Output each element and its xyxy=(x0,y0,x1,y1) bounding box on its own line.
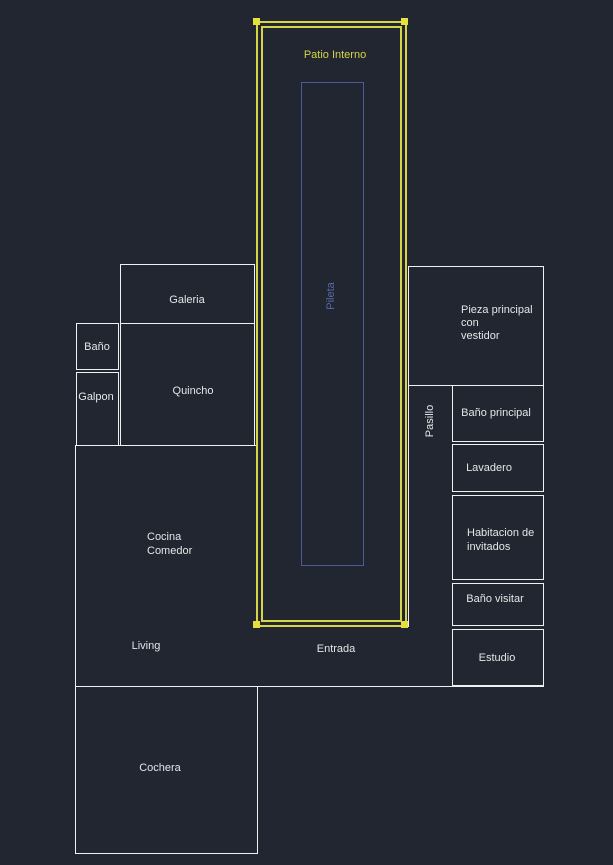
wall-pasillo-west[interactable] xyxy=(408,386,409,627)
lavadero-label: Lavadero xyxy=(466,462,512,475)
grip-handle-top-left[interactable] xyxy=(253,18,260,25)
quincho-label: Quincho xyxy=(173,385,214,398)
cochera-label: Cochera xyxy=(139,762,181,775)
pieza-principal-label: Pieza principal con vestidor xyxy=(461,304,533,343)
grip-handle-top-right[interactable] xyxy=(401,18,408,25)
floorplan-canvas: Patio Interno Pileta Pasillo Galeria Bañ… xyxy=(0,0,613,865)
entrada-label: Entrada xyxy=(317,643,356,656)
bano-visitar-label: Baño visitar xyxy=(466,593,523,606)
pileta-label: Pileta xyxy=(325,282,337,310)
bano-label: Baño xyxy=(84,341,110,354)
grip-handle-bottom-right[interactable] xyxy=(401,621,408,628)
estudio-label: Estudio xyxy=(479,652,516,665)
room-cocina-living[interactable] xyxy=(75,445,256,687)
cocina-comedor-label: Cocina Comedor xyxy=(147,530,192,558)
galeria-label: Galeria xyxy=(169,294,204,307)
patio-interno-label: Patio Interno xyxy=(304,49,366,62)
bano-principal-label: Baño principal xyxy=(461,407,531,420)
habitacion-invitados-label: Habitacion de invitados xyxy=(467,526,534,554)
pool-rect[interactable] xyxy=(301,82,364,566)
galpon-label: Galpon xyxy=(78,391,113,404)
living-label: Living xyxy=(132,640,161,653)
room-galpon[interactable] xyxy=(76,372,119,446)
pasillo-label: Pasillo xyxy=(424,405,436,437)
